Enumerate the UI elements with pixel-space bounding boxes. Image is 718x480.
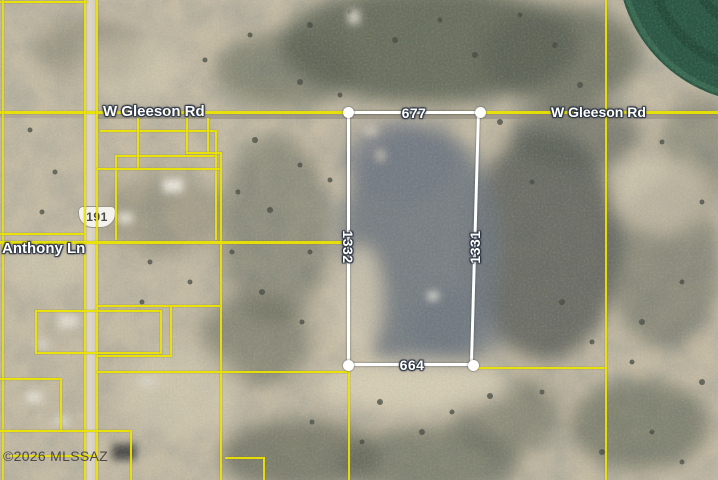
boundary-line-east: [605, 0, 607, 480]
boundary-line: [97, 305, 220, 307]
boundary-line: [60, 378, 62, 432]
copyright-watermark: ©2026 MLSSAZ: [3, 448, 108, 464]
boundary-line: [96, 0, 98, 480]
parcel-vertex-se: [468, 360, 479, 371]
boundary-line: [186, 152, 222, 154]
boundary-line: [97, 355, 172, 357]
road-label-gleeson-west: W Gleeson Rd: [103, 104, 205, 119]
road-label-gleeson-east: W Gleeson Rd: [551, 105, 646, 119]
dimension-north: 677: [374, 106, 454, 120]
parcel-vertex-ne: [475, 107, 486, 118]
boundary-line: [220, 152, 222, 480]
road-label-anthony-ln: Anthony Ln: [2, 241, 85, 256]
boundary-line: [130, 430, 132, 480]
boundary-line: [35, 352, 162, 354]
boundary-line: [0, 233, 84, 235]
boundary-line: [0, 378, 60, 380]
boundary-line: [207, 118, 209, 154]
satellite-map: 191 W Gleeson Rd W Gleeson Rd Anthony Ln…: [0, 0, 718, 480]
boundary-line: [35, 310, 162, 312]
boundary-line: [100, 130, 215, 132]
boundary-line: [348, 367, 350, 480]
parcel-vertex-sw: [343, 360, 354, 371]
boundary-line: [160, 310, 162, 354]
boundary-line: [97, 168, 221, 170]
boundary-line: [473, 367, 605, 369]
dimension-east: 1331: [468, 230, 482, 263]
boundary-line: [0, 430, 130, 432]
boundary-line: [215, 130, 217, 240]
boundary-line: [170, 305, 172, 355]
boundary-line: [35, 310, 37, 354]
dimension-south: 664: [372, 358, 452, 372]
dimension-west: 1332: [341, 230, 355, 263]
boundary-line: [115, 155, 215, 157]
boundary-line: [0, 1, 88, 3]
boundary-line: [263, 457, 265, 480]
satellite-imagery: [0, 0, 718, 480]
boundary-line: [97, 371, 348, 373]
boundary-line: [137, 118, 139, 168]
parcel-vertex-nw: [343, 107, 354, 118]
boundary-line: [186, 118, 188, 154]
boundary-line: [225, 457, 265, 459]
